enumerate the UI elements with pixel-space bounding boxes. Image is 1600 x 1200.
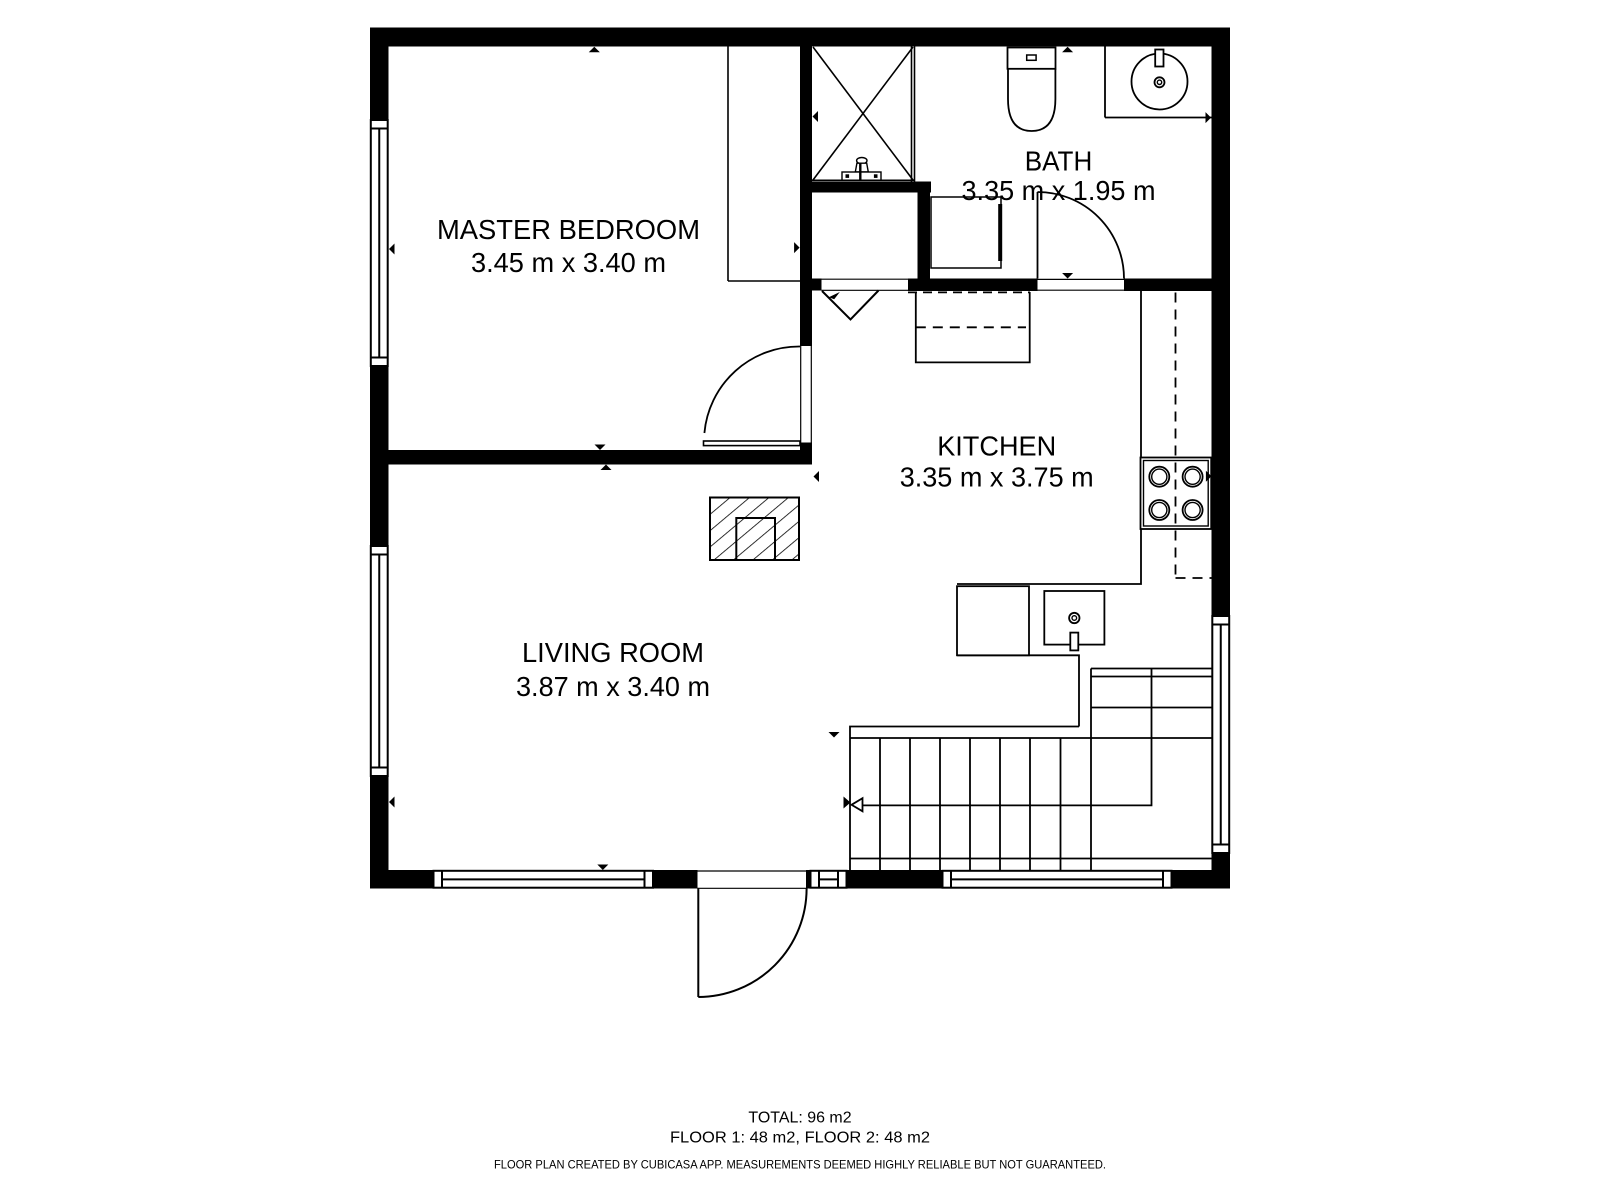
svg-text:FLOOR PLAN CREATED BY CUBICASA: FLOOR PLAN CREATED BY CUBICASA APP. MEAS…	[494, 1158, 1106, 1172]
svg-text:BATH: BATH	[1025, 146, 1093, 177]
svg-text:LIVING ROOM: LIVING ROOM	[522, 637, 704, 668]
svg-text:MASTER BEDROOM: MASTER BEDROOM	[437, 214, 700, 245]
svg-text:3.35 m x 3.75 m: 3.35 m x 3.75 m	[900, 462, 1094, 493]
svg-text:FLOOR 1: 48 m2, FLOOR 2: 48 m2: FLOOR 1: 48 m2, FLOOR 2: 48 m2	[670, 1130, 930, 1147]
svg-text:3.45 m x 3.40 m: 3.45 m x 3.40 m	[471, 247, 666, 278]
svg-text:KITCHEN: KITCHEN	[937, 431, 1056, 462]
svg-text:3.87 m x 3.40 m: 3.87 m x 3.40 m	[516, 671, 710, 702]
svg-text:3.35 m x 1.95 m: 3.35 m x 1.95 m	[962, 175, 1156, 206]
svg-text:TOTAL: 96 m2: TOTAL: 96 m2	[748, 1110, 851, 1127]
